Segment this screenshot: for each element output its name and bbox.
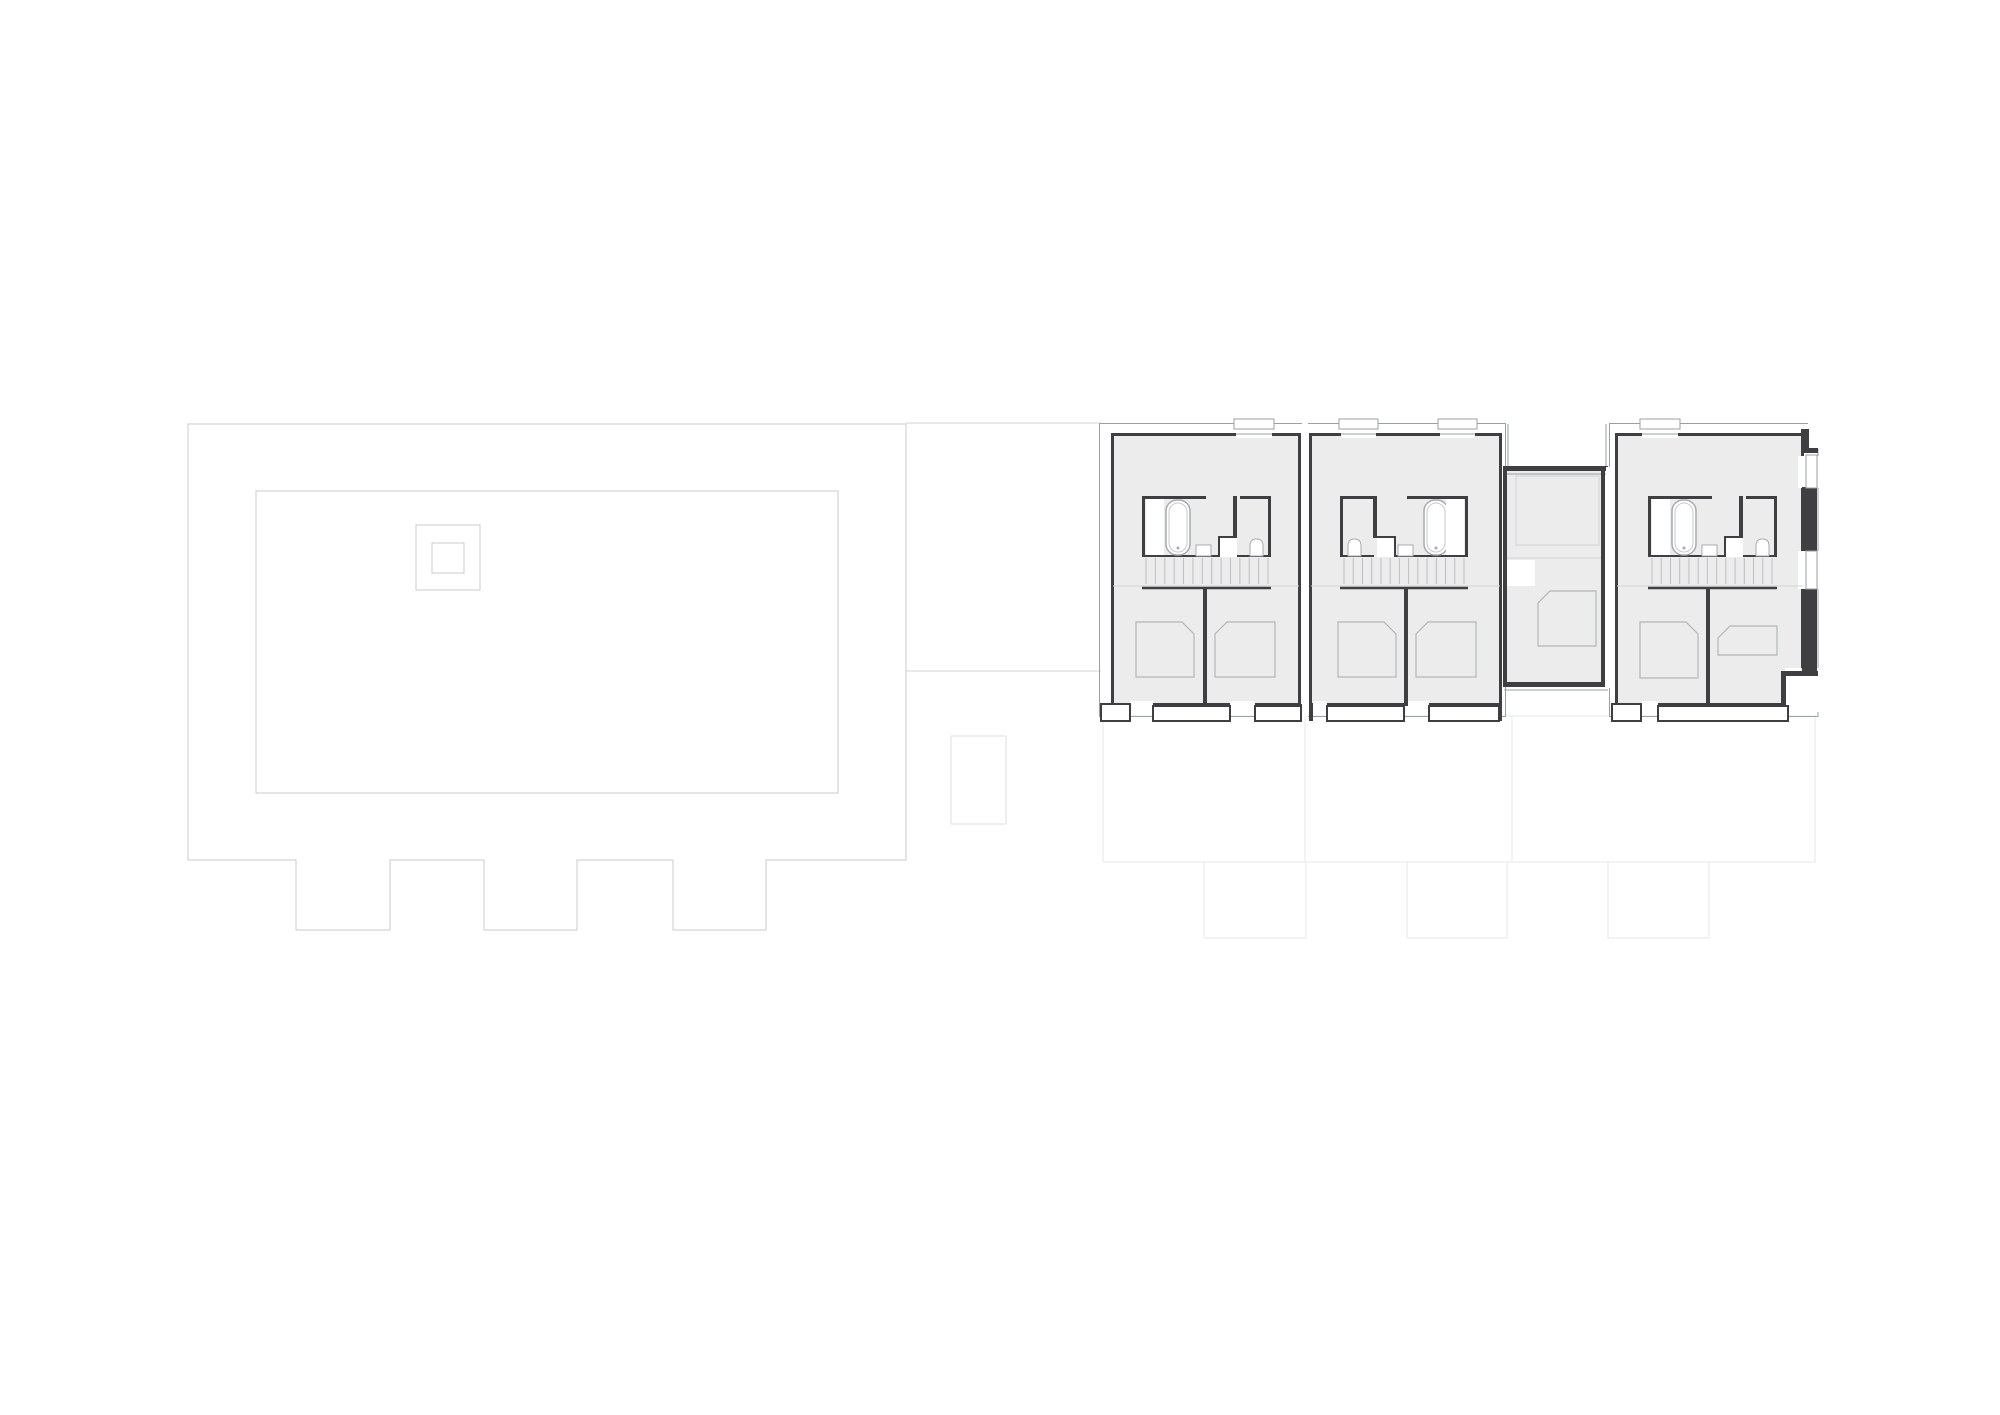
bath2-notch-right-wall xyxy=(1394,536,1396,557)
core-bottom-wall xyxy=(1503,682,1605,687)
bath3-basin xyxy=(1756,539,1769,556)
bath3-notch-top-wall xyxy=(1724,536,1743,538)
bath3-notch-left-wall xyxy=(1724,536,1726,557)
unit3-right-windowA-frame xyxy=(1806,455,1817,488)
bath2-right-wall xyxy=(1465,496,1468,557)
unit1-sill-2 xyxy=(1255,706,1301,721)
unit3-bottom-gap xyxy=(1641,701,1658,709)
unit2-sill-2 xyxy=(1429,706,1499,721)
unit1-top-window-frame xyxy=(1234,419,1274,429)
bath3-bathtub-drain xyxy=(1683,547,1686,550)
bath2-top-wall-right xyxy=(1407,496,1468,499)
left-building-skylight-inner xyxy=(432,543,464,573)
unit2-sill-1 xyxy=(1327,706,1404,721)
bath2-top-wall-left xyxy=(1340,496,1373,499)
lower-floor-bay-3 xyxy=(1608,862,1709,938)
bath1-right-wall xyxy=(1268,496,1271,557)
bath1-closet xyxy=(1146,499,1164,555)
core-front-wall xyxy=(1504,466,1608,471)
core-left-wall xyxy=(1503,466,1507,687)
bath2-door-notch xyxy=(1377,538,1394,557)
unit1-bottom-gap1 xyxy=(1130,701,1153,709)
bottom-sills xyxy=(1101,704,1788,721)
lower-floor-bay-2 xyxy=(1407,862,1507,938)
bath1-top-wall-right xyxy=(1240,496,1271,499)
bath1-notch-top-wall xyxy=(1218,536,1237,538)
bath2-closet xyxy=(1446,499,1464,555)
lower-floor-bay-1 xyxy=(1204,862,1306,938)
floor-plan-svg xyxy=(0,0,2000,1415)
bath1-bathtub-drain xyxy=(1177,547,1180,550)
bath3-top-wall-left xyxy=(1648,496,1712,499)
unit3-top-window-frame xyxy=(1640,419,1680,429)
bath1-notch-left-wall xyxy=(1218,536,1220,557)
bath1-left-wall xyxy=(1142,496,1145,557)
core-unit3-slit xyxy=(1606,467,1615,688)
lower-floor-outline xyxy=(1103,716,1815,862)
floor-plan-page xyxy=(0,0,2000,1415)
unit3-right-wall-upper xyxy=(1802,487,1817,551)
unit3-notch-jog-vertical xyxy=(1801,429,1809,453)
unit2-bed-left xyxy=(1338,622,1396,677)
unit3-step-wall-vertical xyxy=(1781,676,1786,709)
unit2-bed-right xyxy=(1416,622,1476,677)
unit3-notch-jog-horizontal xyxy=(1808,448,1818,453)
unit3-long-sill xyxy=(1658,706,1788,721)
unit2-top-window1-frame xyxy=(1339,419,1378,429)
core-stair-void xyxy=(1507,560,1535,586)
bath1-basin xyxy=(1250,539,1263,556)
bath2-basin xyxy=(1348,539,1361,556)
unit2-bottom-gap1 xyxy=(1313,701,1327,709)
bath2-notch-top-wall xyxy=(1377,536,1396,538)
lower-floor-annex xyxy=(951,736,1006,824)
bath2-bathtub-drain xyxy=(1435,547,1438,550)
bath2-left-wall xyxy=(1340,496,1343,557)
unit2-top-window2-frame xyxy=(1438,419,1477,429)
unit3-bed-left xyxy=(1640,622,1698,678)
unit1-sill-1 xyxy=(1153,706,1230,721)
unit1-bottom-gap2 xyxy=(1230,701,1255,709)
ghost-lower-floor xyxy=(951,716,1815,938)
bath1-toilet xyxy=(1196,545,1211,556)
unit3-corner-sill xyxy=(1612,704,1641,721)
bath3-closet xyxy=(1652,499,1670,555)
core-right-wall xyxy=(1601,466,1605,687)
unit1-room-divider xyxy=(1203,588,1207,706)
bath3-right-wall xyxy=(1774,496,1777,557)
left-building-outline xyxy=(188,424,906,930)
core-bed xyxy=(1538,591,1596,646)
unit1-bed-left xyxy=(1136,622,1194,677)
bath1-door-notch xyxy=(1220,538,1237,557)
bath3-divider-wall xyxy=(1739,496,1743,538)
bath2-toilet xyxy=(1398,545,1413,556)
bath1-top-wall-left xyxy=(1142,496,1206,499)
bath3-door-notch xyxy=(1726,538,1743,557)
unit1-bed-right xyxy=(1215,622,1275,677)
left-building-inner-rect xyxy=(256,491,838,793)
unit3-corner-notch-opening xyxy=(1808,418,1820,449)
site-lines xyxy=(906,423,1101,671)
bath2-divider-wall xyxy=(1373,496,1377,538)
party-wall-slit xyxy=(1302,423,1308,717)
bath3-toilet xyxy=(1702,545,1717,556)
bath3-top-wall-right xyxy=(1746,496,1777,499)
unit3-step-wall-horizontal xyxy=(1781,671,1818,676)
unit1-corner-sill xyxy=(1101,704,1130,721)
unit3-desk-right xyxy=(1718,626,1777,655)
unit3-right-wall-lower xyxy=(1802,589,1817,672)
unit3-room-divider xyxy=(1706,588,1710,706)
left-building-roof xyxy=(188,424,906,930)
unit2-room-divider xyxy=(1404,588,1408,706)
party-wall-stub-right xyxy=(1309,704,1313,721)
bath3-left-wall xyxy=(1648,496,1651,557)
left-building-skylight-outer xyxy=(416,525,480,590)
bath1-divider-wall xyxy=(1233,496,1237,538)
unit3-right-windowB-frame xyxy=(1806,551,1817,589)
